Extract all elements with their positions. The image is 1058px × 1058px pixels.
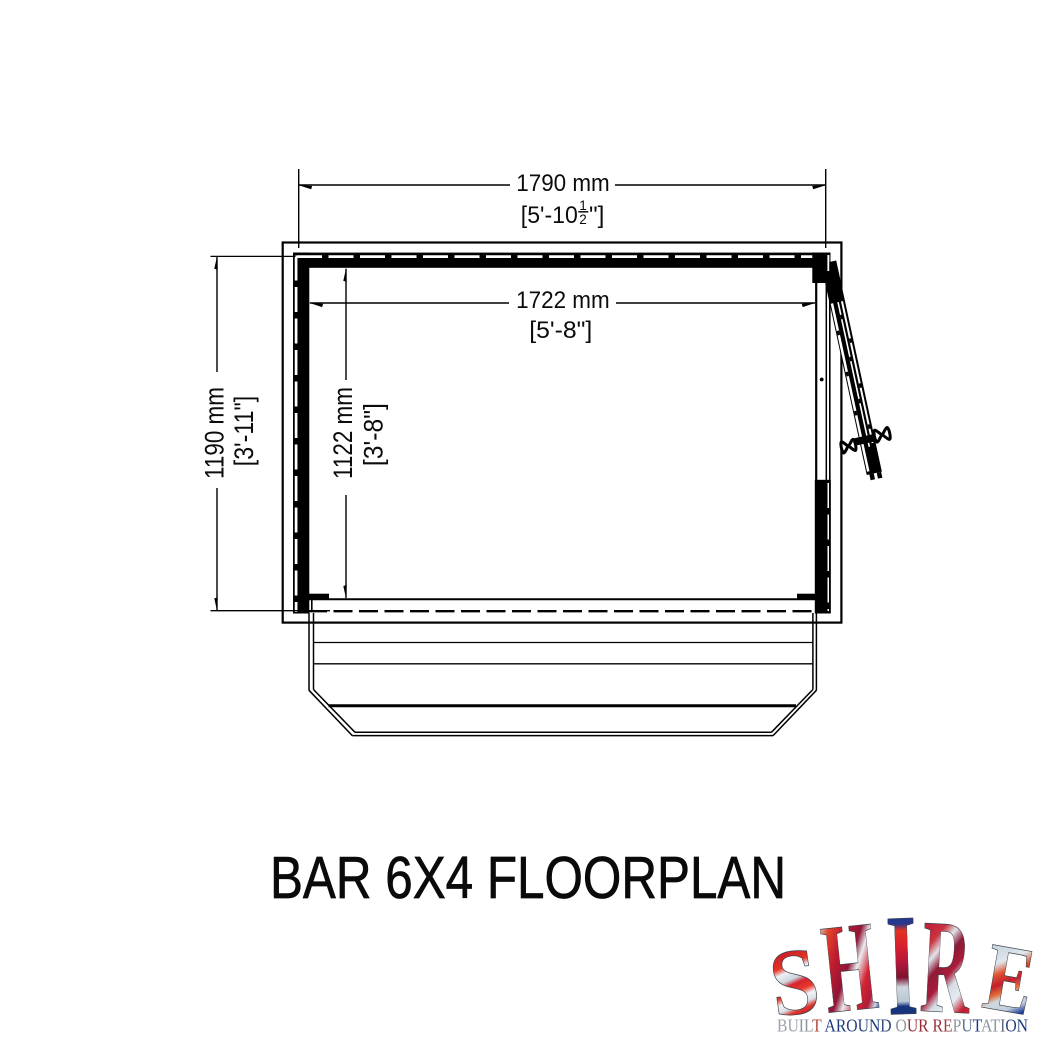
svg-text:1790 mm: 1790 mm [516,170,610,197]
svg-text:[5'-8"]: [5'-8"] [529,317,592,344]
svg-text:2: 2 [579,212,587,227]
svg-text:1190 mm: 1190 mm [199,387,229,479]
svg-text:1: 1 [579,198,587,213]
svg-text:[3'-8"]: [3'-8"] [359,403,389,466]
svg-text:1122 mm: 1122 mm [328,387,358,479]
svg-text:BUILT AROUND OUR REPUTATION: BUILT AROUND OUR REPUTATION [777,1016,1028,1036]
svg-text:1722 mm: 1722 mm [516,287,610,314]
svg-text:"]: "] [589,202,604,229]
svg-text:[3'-11"]: [3'-11"] [229,396,259,467]
svg-text:[5'-10: [5'-10 [521,202,578,229]
